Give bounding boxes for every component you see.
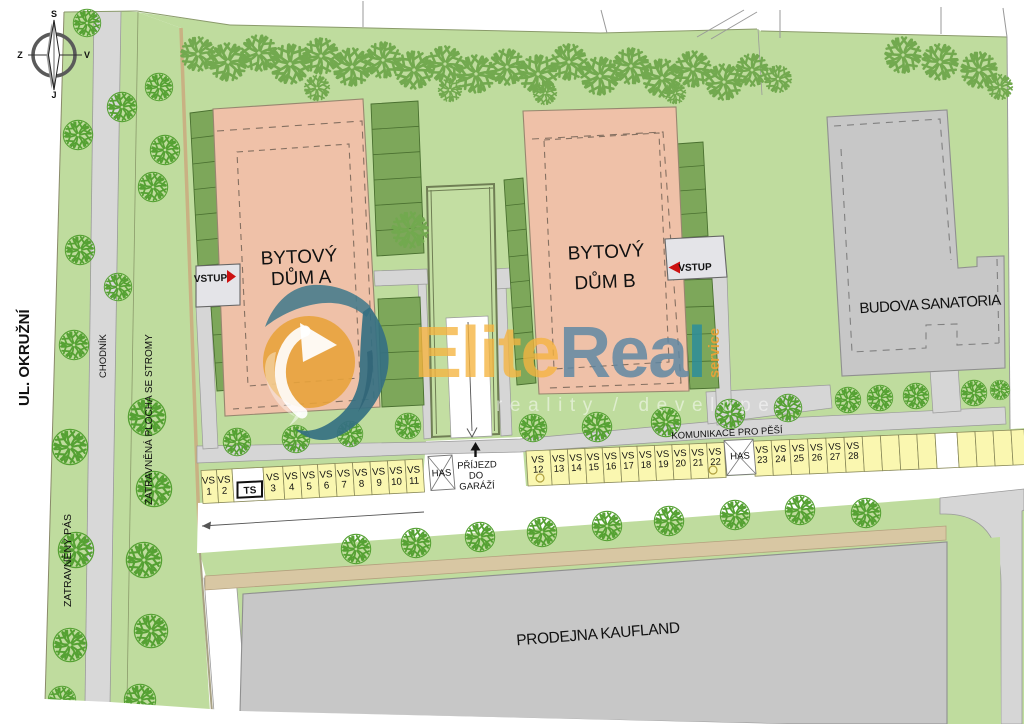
svg-text:25: 25 — [793, 453, 804, 465]
svg-text:VS: VS — [389, 465, 403, 477]
svg-text:HAS: HAS — [730, 450, 750, 462]
svg-text:service: service — [707, 328, 723, 378]
svg-text:24: 24 — [775, 454, 786, 466]
svg-text:EliteReal: EliteReal — [414, 313, 706, 393]
svg-text:8: 8 — [359, 479, 365, 490]
svg-text:VS: VS — [372, 466, 386, 478]
svg-text:10: 10 — [391, 476, 403, 488]
svg-text:ZATRAVNĚNÁ PLOCHA SE STROMY: ZATRAVNĚNÁ PLOCHA SE STROMY — [142, 334, 155, 505]
svg-text:VS: VS — [319, 469, 333, 481]
svg-text:DŮM B: DŮM B — [574, 270, 636, 295]
svg-text:28: 28 — [848, 451, 859, 463]
svg-text:VS: VS — [202, 475, 216, 487]
svg-text:reality / develope: reality / develope — [496, 395, 776, 416]
svg-text:23: 23 — [757, 455, 768, 467]
svg-text:BYTOVÝ: BYTOVÝ — [567, 240, 645, 264]
svg-text:CHODNÍK: CHODNÍK — [98, 334, 109, 378]
svg-text:VS: VS — [354, 467, 368, 479]
svg-text:VS: VS — [302, 470, 316, 482]
svg-text:16: 16 — [606, 461, 617, 473]
svg-text:ZATRAVNĚNÝ PÁS: ZATRAVNĚNÝ PÁS — [61, 514, 74, 607]
svg-text:21: 21 — [693, 457, 704, 469]
svg-text:14: 14 — [571, 463, 582, 475]
svg-text:11: 11 — [409, 476, 420, 488]
svg-text:VS: VS — [217, 474, 231, 486]
svg-text:GARÁŽÍ: GARÁŽÍ — [459, 480, 495, 492]
svg-text:3: 3 — [270, 483, 276, 494]
svg-text:S: S — [51, 9, 57, 19]
svg-text:V: V — [84, 50, 90, 60]
svg-text:1: 1 — [206, 486, 212, 497]
svg-text:13: 13 — [553, 463, 564, 475]
svg-text:19: 19 — [658, 459, 669, 471]
svg-text:VS: VS — [284, 471, 298, 483]
svg-text:17: 17 — [623, 460, 634, 472]
svg-text:UL. OKRUŽNÍ: UL. OKRUŽNÍ — [15, 309, 33, 406]
svg-text:6: 6 — [324, 480, 330, 491]
svg-text:VS: VS — [266, 472, 280, 484]
svg-text:J: J — [51, 90, 56, 100]
svg-text:VSTUP: VSTUP — [678, 262, 712, 274]
svg-text:HAS: HAS — [431, 467, 451, 479]
svg-text:2: 2 — [222, 486, 228, 497]
svg-text:26: 26 — [811, 452, 822, 464]
svg-text:18: 18 — [640, 460, 651, 472]
svg-text:7: 7 — [341, 479, 347, 490]
svg-text:9: 9 — [376, 478, 382, 489]
svg-text:VSTUP: VSTUP — [194, 273, 228, 285]
svg-text:Z: Z — [17, 50, 23, 60]
svg-text:VS: VS — [407, 465, 421, 477]
svg-text:20: 20 — [675, 458, 686, 470]
svg-text:VS: VS — [337, 468, 351, 480]
svg-text:15: 15 — [588, 462, 599, 474]
svg-text:TS: TS — [243, 485, 257, 497]
svg-text:27: 27 — [830, 451, 841, 463]
